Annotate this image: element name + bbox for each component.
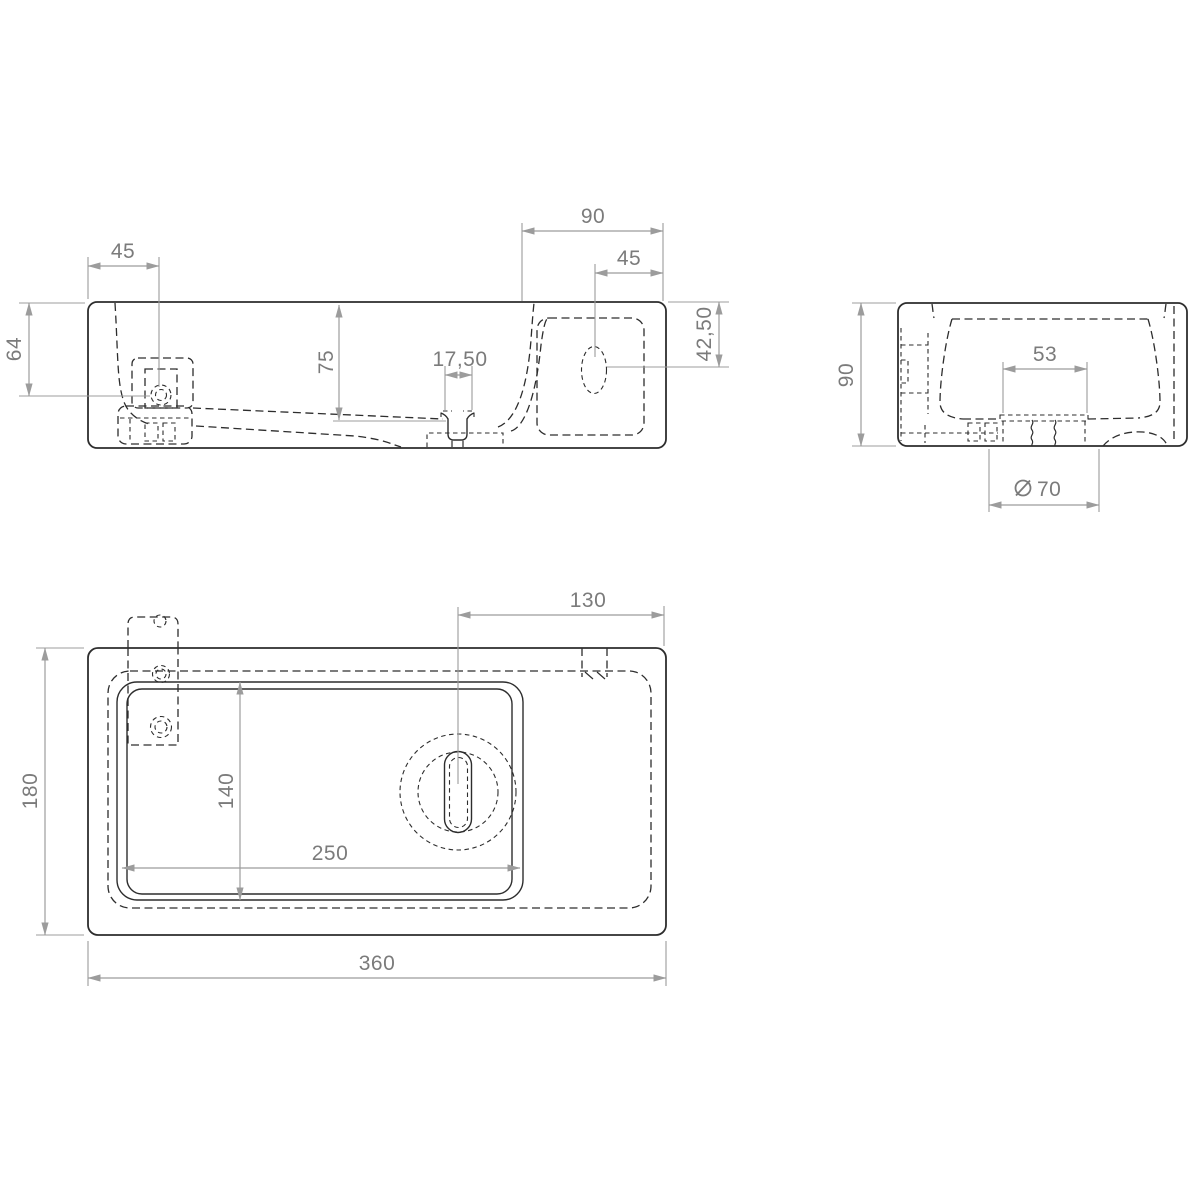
washbasin-dimension-drawing: 45 64 75 17,50 90 bbox=[0, 0, 1200, 1200]
front-drain-bracket-hidden bbox=[427, 433, 503, 447]
side-pipe-break-line bbox=[1031, 420, 1033, 446]
dim-label: 17,50 bbox=[432, 348, 487, 371]
dim-label: 45 bbox=[617, 247, 641, 270]
dim-label: 90 bbox=[835, 363, 858, 387]
dim-label: 53 bbox=[1033, 343, 1057, 366]
dim-label: 130 bbox=[570, 589, 607, 612]
side-skirt-hidden bbox=[1103, 432, 1167, 446]
side-view: 90 53 70 bbox=[835, 303, 1187, 512]
plan-body-outline bbox=[88, 648, 666, 935]
front-floor-slope-lower bbox=[196, 426, 401, 447]
dim-plan-180: 180 bbox=[19, 648, 84, 935]
side-pipe-break-line bbox=[1054, 420, 1056, 446]
dim-front-75: 75 bbox=[315, 305, 339, 420]
dim-front-45-left: 45 bbox=[88, 240, 159, 387]
technical-drawing-page: 45 64 75 17,50 90 bbox=[0, 0, 1200, 1200]
dim-plan-130: 130 bbox=[458, 589, 664, 784]
dim-label: 42,50 bbox=[693, 306, 716, 361]
front-bracket-outline bbox=[118, 406, 192, 444]
front-trap-housing-inner bbox=[145, 369, 177, 408]
dim-label: 140 bbox=[215, 773, 238, 810]
plan-view: 130 180 140 250 360 bbox=[19, 589, 666, 986]
plan-bracket-above-hidden bbox=[128, 617, 178, 648]
dim-front-64: 64 bbox=[3, 303, 150, 396]
front-deck-hidden bbox=[537, 318, 644, 435]
dim-label: 180 bbox=[19, 773, 42, 810]
dim-label: 70 bbox=[1037, 478, 1061, 501]
side-drain-flange-hidden bbox=[1000, 415, 1088, 421]
front-floor-slope-upper bbox=[193, 408, 443, 419]
front-trap-hole-inner bbox=[156, 390, 167, 401]
front-trap-housing-outer bbox=[132, 358, 193, 408]
plan-tap-hole-2 bbox=[151, 717, 172, 738]
plan-cavity-hidden bbox=[108, 671, 651, 908]
dim-label: 64 bbox=[3, 337, 26, 361]
dim-front-42-50: 42,50 bbox=[607, 302, 729, 367]
dim-side-90: 90 bbox=[835, 303, 896, 446]
dim-plan-250: 250 bbox=[122, 842, 520, 868]
front-body-outline bbox=[88, 302, 666, 448]
dim-plan-360: 360 bbox=[88, 941, 666, 986]
dim-front-90: 90 bbox=[522, 205, 663, 301]
dim-label: 75 bbox=[315, 350, 338, 374]
front-basin-left-wall-hidden bbox=[115, 303, 152, 425]
dim-label: 360 bbox=[359, 952, 396, 975]
dim-label: 90 bbox=[581, 205, 605, 228]
dim-plan-140: 140 bbox=[215, 682, 240, 900]
front-drain-slot bbox=[441, 413, 474, 440]
dim-label: 45 bbox=[111, 240, 135, 263]
plan-tap-hole-1 bbox=[153, 666, 170, 683]
front-trap-hole-outer bbox=[151, 385, 171, 405]
diameter-symbol-icon bbox=[1016, 481, 1031, 496]
dim-front-17-50: 17,50 bbox=[432, 348, 487, 410]
dim-side-53: 53 bbox=[1003, 343, 1087, 413]
dim-side-dia70: 70 bbox=[989, 449, 1099, 512]
dim-label: 250 bbox=[312, 842, 349, 865]
front-view: 45 64 75 17,50 90 bbox=[3, 205, 729, 448]
front-overflow-hole-hidden bbox=[582, 347, 607, 394]
